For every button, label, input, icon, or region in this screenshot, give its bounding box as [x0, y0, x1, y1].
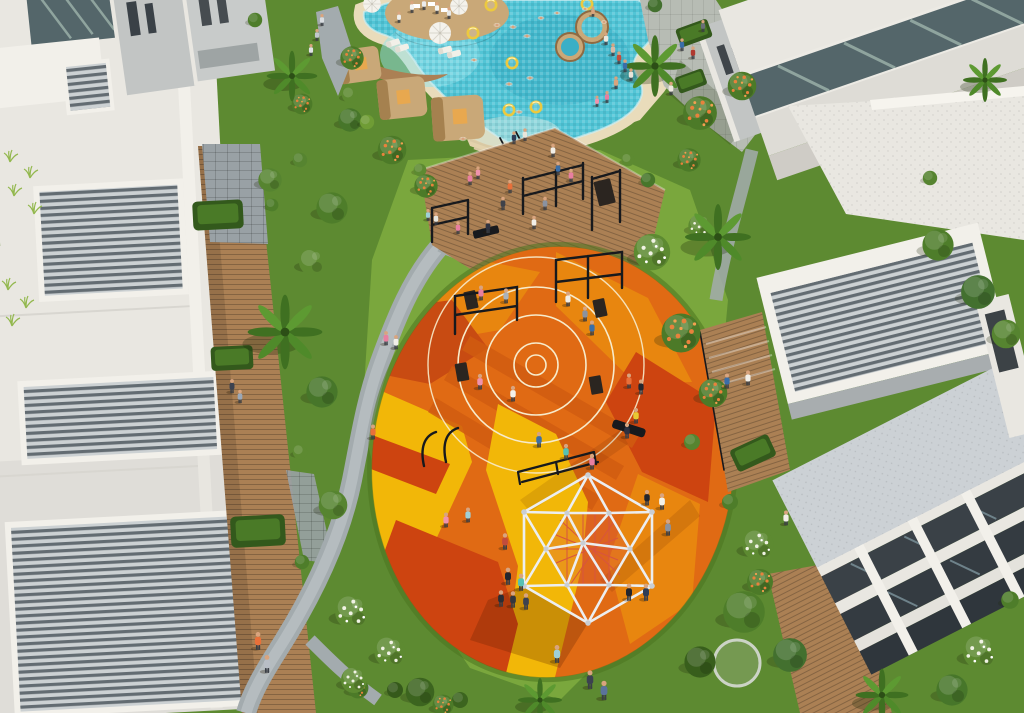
swimmer-instance — [494, 23, 501, 27]
ring-instance — [486, 0, 496, 10]
swimmer-instance — [582, 7, 588, 11]
swimmer-instance — [505, 82, 512, 86]
louver-roof — [33, 178, 189, 302]
swimmer-instance — [538, 16, 545, 20]
louver-roof — [5, 509, 259, 713]
swimmer-instance — [601, 20, 607, 24]
hot-tub — [556, 33, 584, 61]
swimmer-instance — [459, 137, 466, 141]
ring-instance — [468, 28, 478, 38]
hedge-instance — [192, 199, 244, 230]
swimmer-instance — [554, 11, 560, 15]
ring-instance — [504, 105, 514, 115]
render-canvas — [0, 0, 1024, 713]
lawn-ring — [714, 640, 760, 686]
aerial-community-render — [0, 0, 1024, 713]
ring-instance — [531, 102, 541, 112]
hedge-instance — [230, 514, 286, 548]
swimmer-instance — [515, 110, 522, 114]
swimmer-instance — [471, 58, 478, 62]
ring-instance — [507, 58, 517, 68]
cabana — [376, 76, 428, 121]
swimmer-instance — [509, 25, 516, 29]
cabana — [431, 94, 486, 142]
louver-roof — [17, 371, 223, 465]
umbrella-instance — [429, 22, 451, 44]
swimmer-instance — [526, 76, 533, 80]
swimmer-instance — [523, 34, 530, 38]
